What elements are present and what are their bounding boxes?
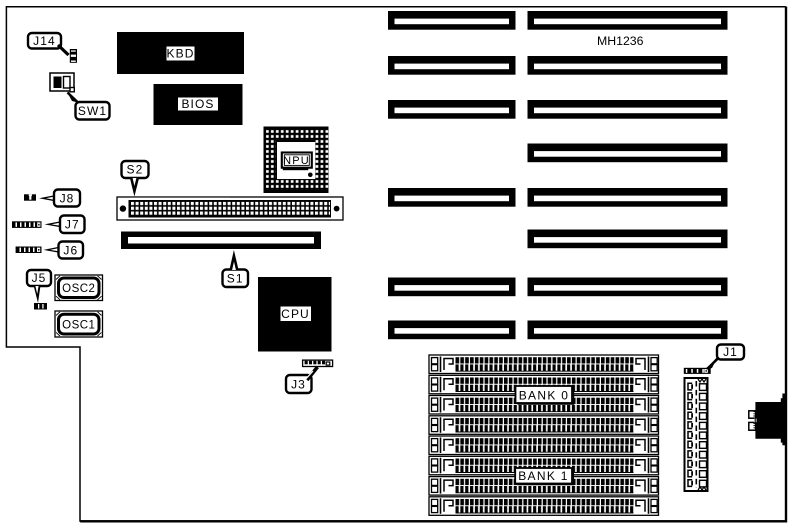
svg-text:J3: J3: [291, 378, 306, 392]
svg-text:J5: J5: [32, 271, 47, 285]
svg-text:SW1: SW1: [78, 104, 107, 118]
svg-text:J14: J14: [33, 34, 56, 48]
svg-text:BANK 1: BANK 1: [518, 469, 569, 483]
svg-text:J8: J8: [60, 191, 75, 205]
svg-text:NPU: NPU: [283, 155, 310, 167]
svg-text:OSC1: OSC1: [62, 319, 95, 331]
svg-text:MH1236: MH1236: [597, 34, 644, 48]
svg-text:BIOS: BIOS: [181, 97, 214, 111]
svg-text:S2: S2: [127, 163, 144, 177]
svg-text:CPU: CPU: [281, 307, 310, 321]
svg-text:BANK 0: BANK 0: [519, 388, 570, 402]
svg-text:KBD: KBD: [167, 46, 195, 60]
svg-text:J1: J1: [723, 345, 738, 359]
svg-text:S1: S1: [227, 272, 244, 286]
svg-text:J6: J6: [63, 243, 78, 257]
svg-text:OSC2: OSC2: [62, 283, 95, 295]
svg-text:J7: J7: [65, 218, 80, 232]
